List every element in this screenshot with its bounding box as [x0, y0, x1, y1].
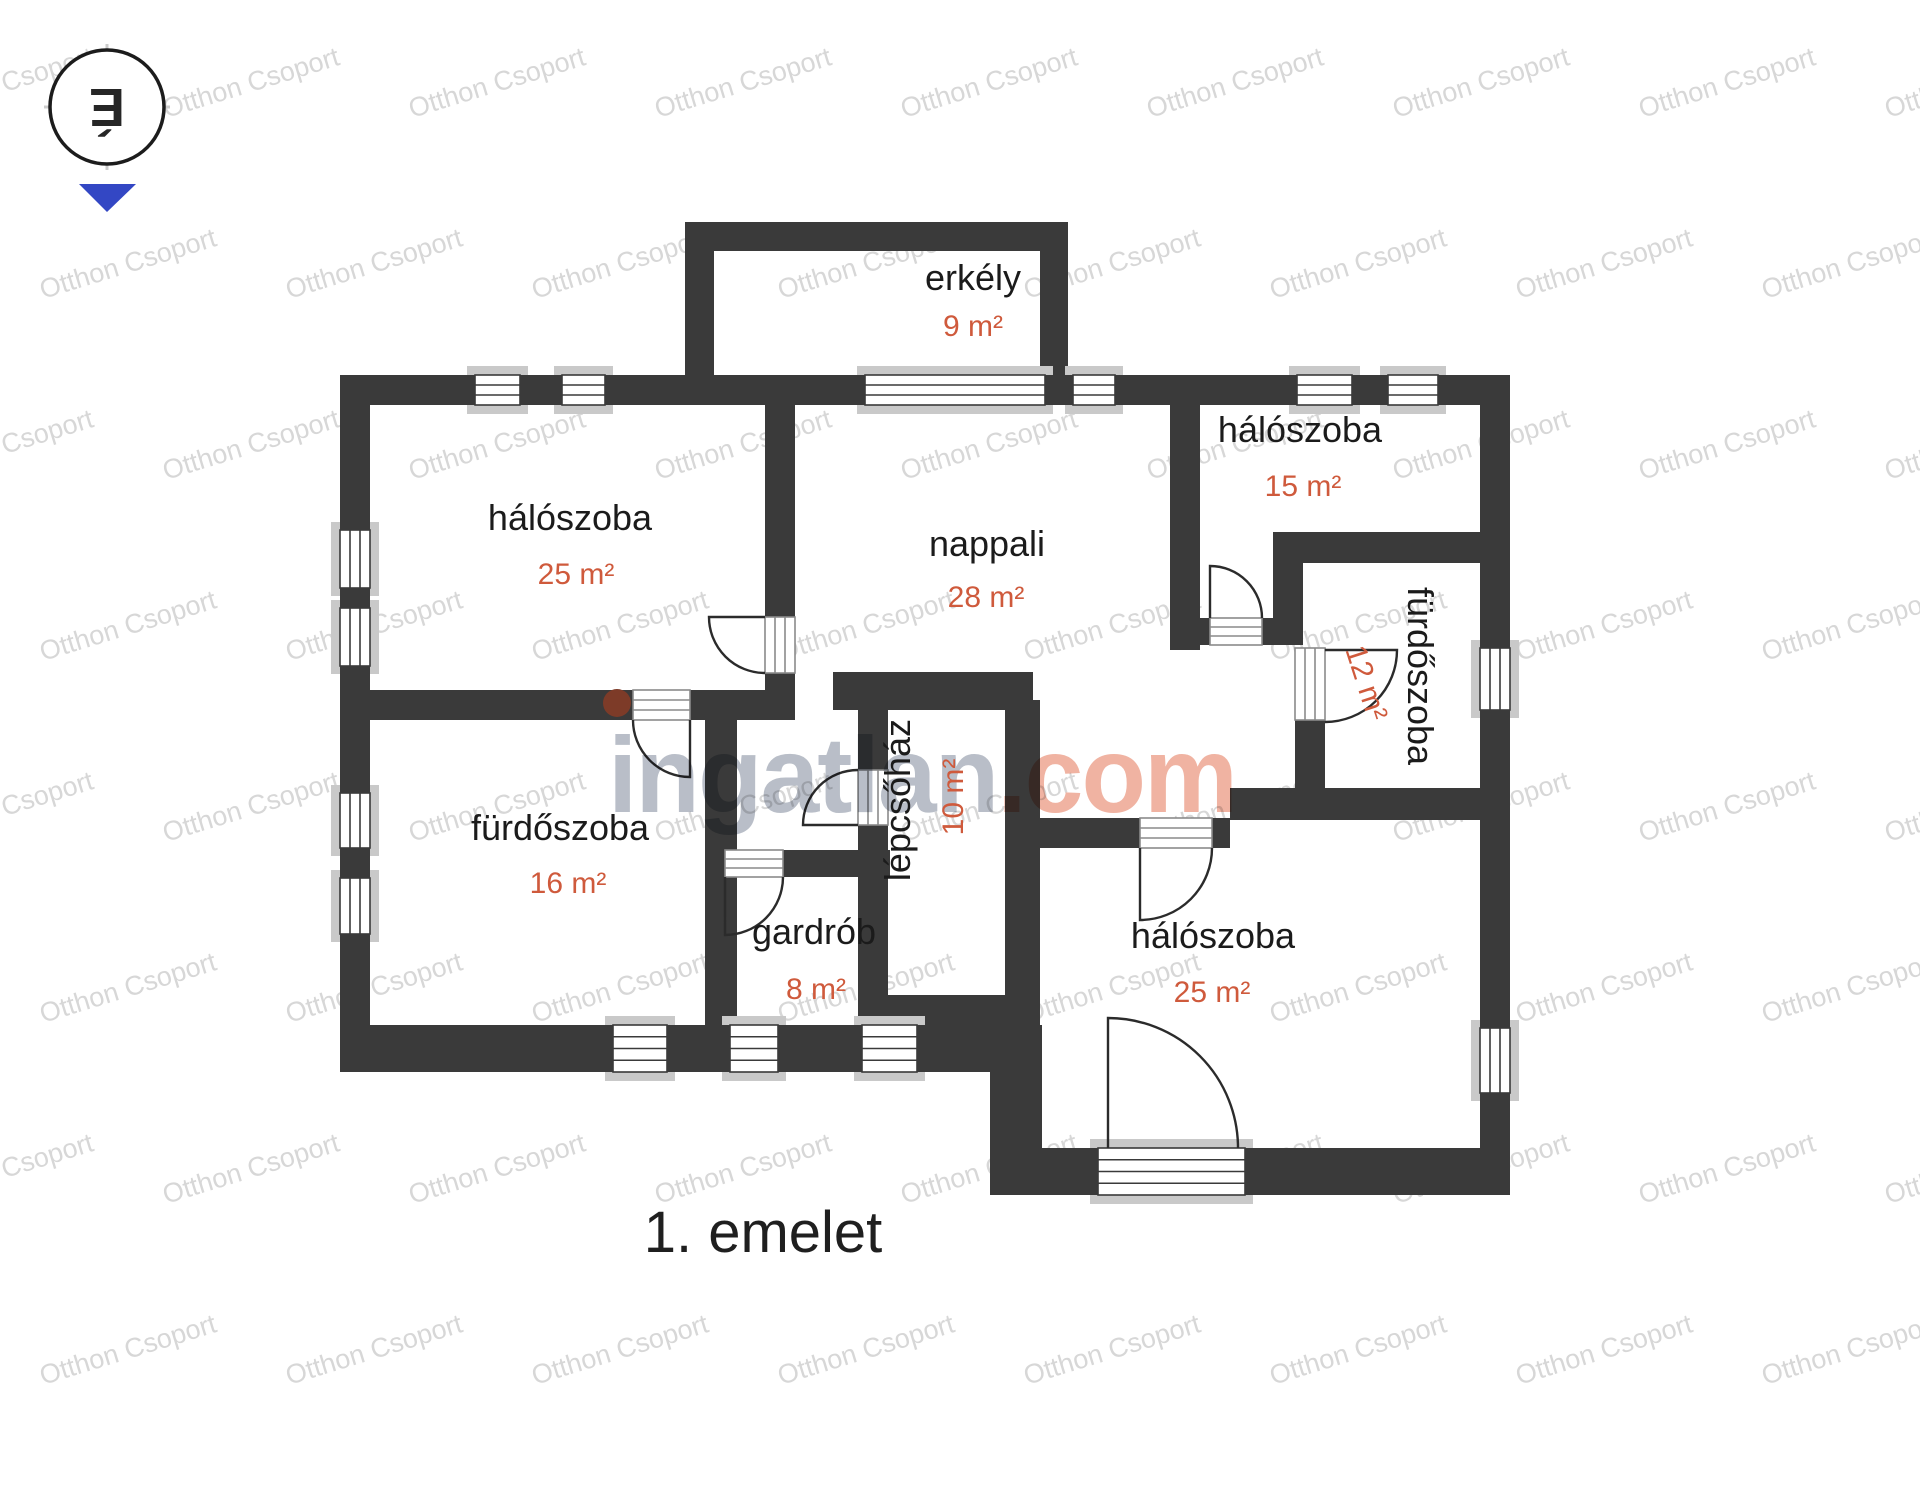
wall-segment — [1295, 720, 1325, 790]
window-icon — [331, 522, 379, 596]
watermark-tile: Otthon Csoport — [897, 41, 1081, 123]
window-glass — [1297, 375, 1352, 405]
wall-segment — [705, 850, 725, 877]
floor-title: 1. emelet — [644, 1200, 883, 1265]
wall-segment — [340, 405, 370, 1072]
room-area-erkely: 9 m² — [943, 310, 1003, 343]
window-sill — [857, 366, 1053, 375]
watermark-tile: Otthon Csoport — [159, 1127, 343, 1209]
window-sill — [1471, 640, 1480, 718]
window-sill — [854, 1072, 925, 1081]
watermark-tile: Otthon Csoport — [1758, 946, 1920, 1028]
watermark-tile: Otthon Csoport — [1266, 222, 1450, 304]
window-glass — [475, 375, 520, 405]
watermark-tile: Otthon Csoport — [0, 1127, 97, 1209]
watermark-tile: Otthon Csoport — [0, 765, 97, 847]
window-sill — [331, 785, 340, 856]
window-sill — [605, 1016, 675, 1025]
wall-segment — [1273, 563, 1303, 645]
window-icon — [605, 1016, 675, 1081]
window-sill — [1380, 405, 1446, 414]
room-area-haloszoba-ne: 15 m² — [1265, 470, 1342, 503]
door-threshold — [765, 617, 795, 673]
window-sill — [857, 405, 1053, 414]
watermark-tile: Otthon Csoport — [282, 222, 466, 304]
watermark-tile: Otthon Csoport — [1143, 41, 1327, 123]
watermark-tile: Otthon Csoport — [1512, 946, 1696, 1028]
window-icon — [1471, 640, 1519, 718]
watermark-tile: Otthon Csoport — [36, 946, 220, 1028]
room-label-haloszoba-nw: hálószoba — [488, 497, 653, 538]
room-label-furdoszoba-e: fürdőszoba — [1400, 587, 1441, 766]
window-icon — [331, 870, 379, 942]
window-sill — [722, 1016, 786, 1025]
watermark-tile: Otthon Csoport — [1881, 41, 1920, 123]
window-icon — [554, 366, 613, 414]
room-area-haloszoba-se: 25 m² — [1174, 976, 1251, 1009]
wall-segment — [1170, 375, 1200, 650]
window-sill — [1090, 1195, 1253, 1204]
watermark-tile: Otthon Csoport — [1266, 1308, 1450, 1390]
room-area-gardrob: 8 m² — [786, 973, 846, 1006]
window-sill — [722, 1072, 786, 1081]
window-icon — [331, 600, 379, 674]
wall-segment — [685, 251, 714, 375]
wall-segment — [685, 222, 1068, 251]
window-sill — [331, 600, 340, 674]
room-label-haloszoba-se: hálószoba — [1131, 915, 1296, 956]
watermark-tile: Otthon Csoport — [774, 1308, 958, 1390]
watermark-tile: Otthon Csoport — [528, 222, 712, 304]
window-glass — [562, 375, 605, 405]
door-threshold-box — [1210, 618, 1262, 645]
window-glass — [340, 878, 370, 934]
wall-segment — [1040, 251, 1068, 375]
window-icon — [857, 366, 1053, 414]
watermark-tile: Otthon Csoport — [405, 41, 589, 123]
window-icon — [1065, 366, 1123, 414]
room-label-erkely: erkély — [925, 257, 1021, 298]
wall-segment — [765, 673, 795, 720]
watermark-tile: Otthon Csoport — [1758, 584, 1920, 666]
window-glass — [340, 530, 370, 588]
room-label-lepcsohaz: lépcsőház — [877, 719, 918, 881]
window-sill — [1065, 366, 1123, 375]
window-sill — [1065, 405, 1123, 414]
window-icon — [467, 366, 528, 414]
knob-dot — [603, 689, 631, 717]
window-icon — [854, 1016, 925, 1081]
window-glass — [1480, 648, 1510, 710]
window-sill — [854, 1016, 925, 1025]
watermark-tile: Otthon Csoport — [36, 584, 220, 666]
window-icon — [1090, 1139, 1253, 1204]
window-sill — [370, 600, 379, 674]
door-threshold-box — [765, 617, 795, 673]
window-icon — [1289, 366, 1360, 414]
watermark-tile: Otthon Csoport — [405, 1127, 589, 1209]
watermark-tile: Otthon Csoport — [1020, 1308, 1204, 1390]
window-sill — [1510, 640, 1519, 718]
wall-segment — [1200, 618, 1210, 645]
watermark-tile: Otthon Csoport — [1635, 1127, 1819, 1209]
compass-icon: É — [44, 44, 170, 212]
window-sill — [1510, 1020, 1519, 1101]
watermark-tile: Otthon Csoport — [1512, 1308, 1696, 1390]
window-sill — [370, 785, 379, 856]
window-sill — [467, 366, 528, 375]
window-glass — [340, 608, 370, 666]
watermark-tile: Otthon Csoport — [651, 41, 835, 123]
watermark-tile: Otthon Csoport — [159, 41, 343, 123]
watermark-tile: Otthon Csoport — [1512, 584, 1696, 666]
window-sill — [1289, 366, 1360, 375]
watermark-tile: Otthon Csoport — [1635, 41, 1819, 123]
window-sill — [1380, 366, 1446, 375]
watermark-tile: Otthon Csoport — [36, 1308, 220, 1390]
wall-segment — [1230, 788, 1480, 820]
wall-segment — [833, 672, 1033, 710]
window-sill — [1471, 1020, 1480, 1101]
window-sill — [370, 870, 379, 942]
room-label-nappali: nappali — [929, 523, 1045, 564]
watermark-tile: Otthon Csoport — [36, 222, 220, 304]
room-area-furdoszoba-w: 16 m² — [530, 867, 607, 900]
watermark-tile: Otthon Csoport — [1389, 41, 1573, 123]
room-label-gardrob: gardrób — [752, 911, 876, 952]
window-sill — [605, 1072, 675, 1081]
door-threshold-box — [725, 850, 783, 877]
window-icon — [1471, 1020, 1519, 1101]
door-threshold — [725, 850, 783, 877]
wall-segment — [1273, 532, 1480, 563]
wall-segment — [370, 690, 633, 720]
watermark-tile: Otthon Csoport — [1881, 1127, 1920, 1209]
door-threshold-box — [1295, 648, 1325, 720]
compass-arrow-icon — [79, 184, 136, 212]
compass-north-letter: É — [89, 77, 125, 137]
window-glass — [1073, 375, 1115, 405]
window-icon — [331, 785, 379, 856]
watermark-tile: Otthon Csoport — [1758, 1308, 1920, 1390]
watermark-tile: Otthon Csoport — [1881, 765, 1920, 847]
room-area-haloszoba-nw: 25 m² — [538, 558, 615, 591]
window-sill — [370, 522, 379, 596]
window-sill — [331, 870, 340, 942]
door-threshold — [1295, 648, 1325, 720]
window-sill — [554, 405, 613, 414]
window-icon — [722, 1016, 786, 1081]
window-sill — [331, 522, 340, 596]
watermark-tile: Otthon Csoport — [159, 403, 343, 485]
watermark-tile: Otthon Csoport — [1512, 222, 1696, 304]
door-threshold — [1210, 618, 1262, 645]
watermark-tile: Otthon Csoport — [282, 1308, 466, 1390]
watermark-tile: Otthon Csoport — [1635, 403, 1819, 485]
window-sill — [1090, 1139, 1253, 1148]
watermark-tile: Otthon Csoport — [1881, 403, 1920, 485]
watermark-tile: Otthon Csoport — [0, 403, 97, 485]
watermark-tile: Otthon Csoport — [159, 765, 343, 847]
svg-text:ingatlan.com: ingatlan.com — [608, 714, 1236, 835]
watermark-tile: Otthon Csoport — [1635, 765, 1819, 847]
wall-segment — [765, 405, 795, 617]
room-area-nappali: 28 m² — [948, 581, 1025, 614]
watermark-tile: Otthon Csoport — [1758, 222, 1920, 304]
brand-watermark-accent: .com — [997, 714, 1236, 835]
room-label-haloszoba-ne: hálószoba — [1218, 409, 1383, 450]
window-sill — [467, 405, 528, 414]
window-glass — [340, 793, 370, 848]
window-sill — [554, 366, 613, 375]
window-glass — [865, 375, 1045, 405]
floor-plan: Otthon CsoportOtthon CsoportOtthon Csopo… — [0, 0, 1920, 1491]
room-area-lepcsohaz: 10 m² — [937, 759, 970, 836]
watermark-tile: Otthon Csoport — [528, 1308, 712, 1390]
window-glass — [1480, 1028, 1510, 1093]
brand-watermark: ingatlan.com — [608, 714, 1236, 835]
room-label-furdoszoba-w: fürdőszoba — [471, 807, 650, 848]
watermark-tile: Otthon Csoport — [651, 1127, 835, 1209]
window-icon — [1380, 366, 1446, 414]
window-glass — [1388, 375, 1438, 405]
